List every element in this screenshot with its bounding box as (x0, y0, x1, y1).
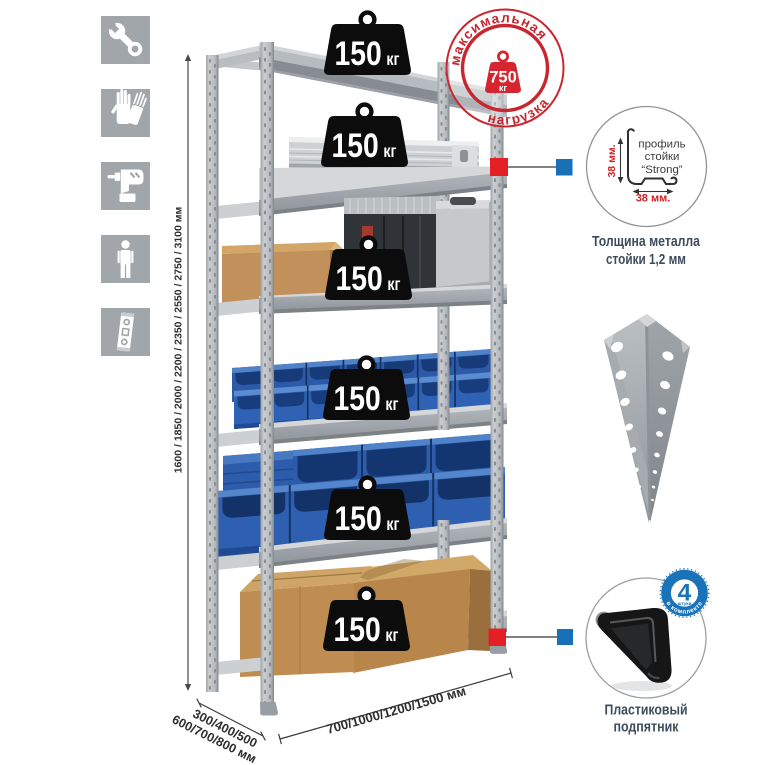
svg-text:Толщина металла: Толщина металла (592, 234, 701, 250)
svg-text:кг: кг (499, 83, 508, 93)
svg-text:38 мм.: 38 мм. (636, 193, 671, 205)
svg-text:штуки: штуки (678, 601, 692, 606)
svg-text:стойки 1,2 мм: стойки 1,2 мм (606, 252, 686, 268)
svg-text:стойки: стойки (645, 151, 680, 163)
svg-text:1600 / 1850 / 2000 / 2200 / 23: 1600 / 1850 / 2000 / 2200 / 2350 / 2550 … (173, 206, 185, 473)
svg-text:подпятник: подпятник (614, 720, 679, 736)
svg-text:38 мм.: 38 мм. (606, 144, 618, 177)
svg-text:700/1000/1200/1500 мм: 700/1000/1200/1500 мм (325, 683, 468, 737)
svg-text:“Strong”: “Strong” (641, 164, 682, 176)
svg-text:профиль: профиль (638, 139, 685, 151)
svg-text:Пластиковый: Пластиковый (605, 703, 688, 719)
